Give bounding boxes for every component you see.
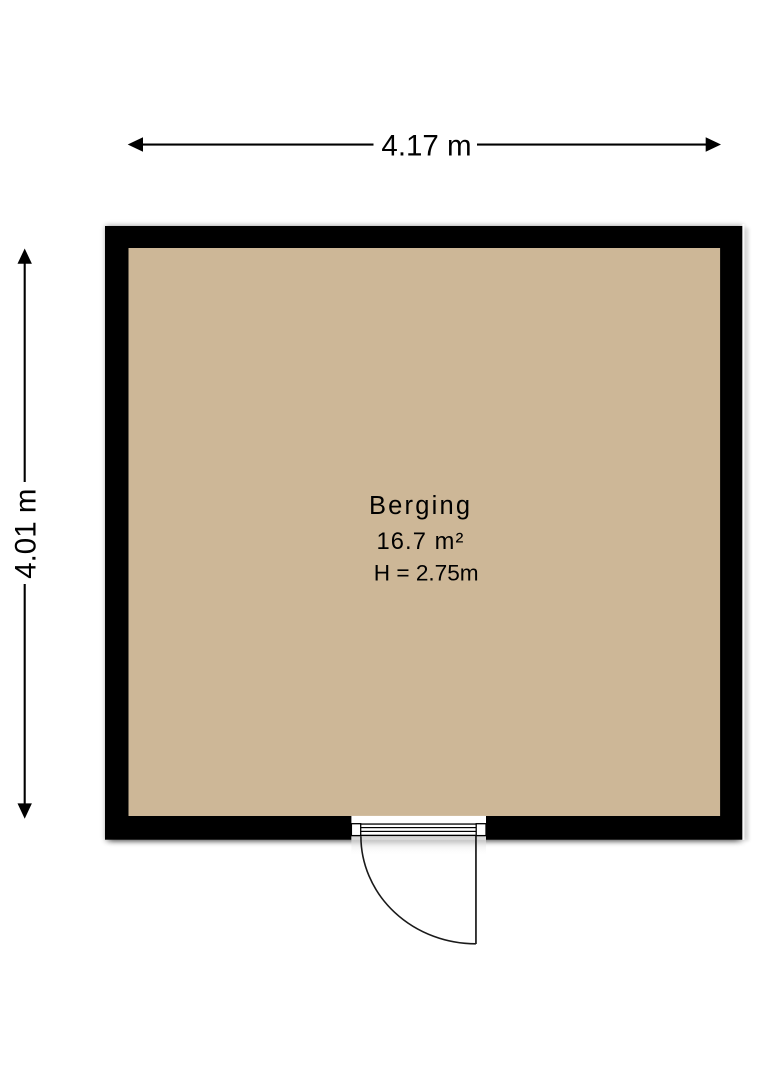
svg-text:Berging: Berging <box>369 492 472 520</box>
svg-text:4.01 m: 4.01 m <box>9 489 42 579</box>
svg-text:16.7 m²: 16.7 m² <box>376 529 464 555</box>
svg-text:H = 2.75m: H = 2.75m <box>374 561 479 586</box>
svg-text:4.17 m: 4.17 m <box>381 129 471 162</box>
